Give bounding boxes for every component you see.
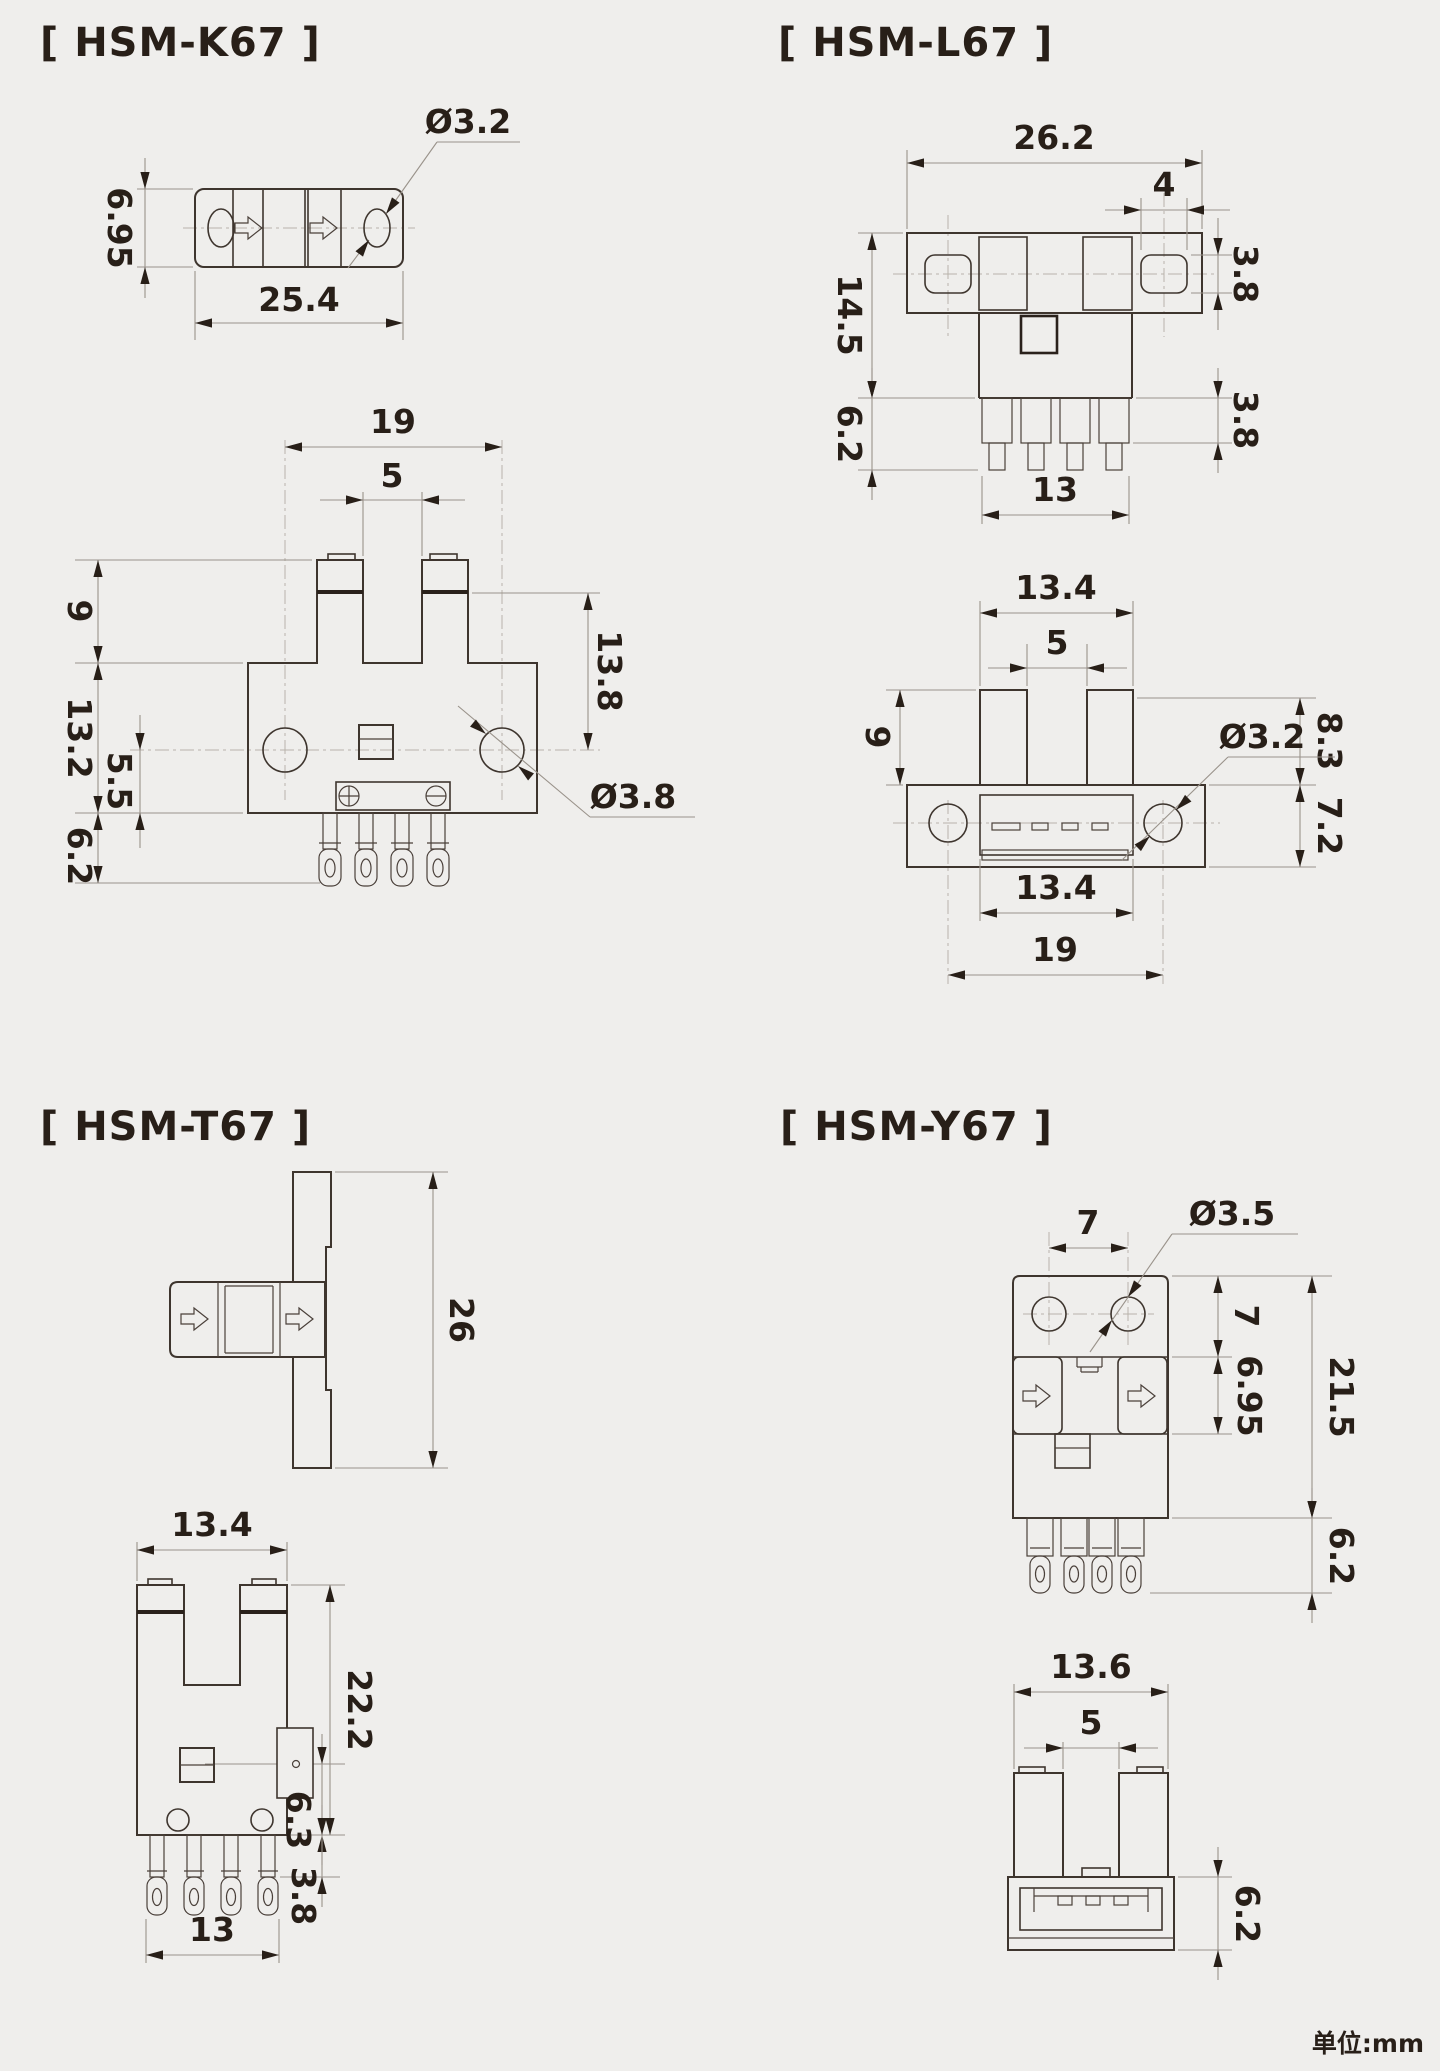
dim-label: 9 <box>858 726 897 749</box>
dim-label: 6.3 <box>279 1791 318 1849</box>
l67-bottom-dia-leader: Ø3.2 <box>1122 717 1335 860</box>
l67-bottom-dim-span: 19 <box>948 930 1163 980</box>
l67-pins <box>982 398 1129 470</box>
dim-label: 25.4 <box>258 280 339 319</box>
dim-label: 8.3 <box>1310 712 1349 770</box>
units-label: 单位:mm <box>1312 2029 1424 2058</box>
screw-slot-icon <box>426 786 446 806</box>
k67-top-dim-height: 6.95 <box>100 158 193 298</box>
y67-bottom-dim-slot: 5 <box>1024 1703 1158 1769</box>
l67-front-dim-pinstage: 3.8 <box>1133 368 1265 473</box>
dim-label: 6.95 <box>100 187 139 268</box>
y67-front-dia-leader: Ø3.5 <box>1090 1194 1298 1352</box>
drawing-canvas: [ HSM-K67 ] [ HSM-L67 ] [ HSM-T67 ] [ HS… <box>0 0 1440 2071</box>
t67-title: [ HSM-T67 ] <box>40 1104 311 1150</box>
k67-pins <box>319 813 449 886</box>
t67-side-dim-height: 26 <box>335 1172 481 1468</box>
l67-front-dim-pinsw: 13 <box>982 470 1129 524</box>
t67-pins <box>147 1835 278 1915</box>
datasheet-dimension-page: [ HSM-K67 ] [ HSM-L67 ] [ HSM-T67 ] [ HS… <box>0 0 1440 2071</box>
k67-title: [ HSM-K67 ] <box>40 20 321 66</box>
k67-front-dim-pinh: 6.2 <box>60 813 320 885</box>
dim-label: 5 <box>1046 623 1069 662</box>
l67-bottom-dim-baseh: 7.2 <box>1209 785 1349 867</box>
k67-front-dim-span: 19 <box>285 402 502 452</box>
dim-label: Ø3.2 <box>425 102 512 141</box>
dim-label: 6.95 <box>1230 1355 1269 1436</box>
dim-label: 6.2 <box>1322 1527 1361 1585</box>
dim-label: 6.2 <box>60 827 99 885</box>
dim-label: 5.5 <box>100 752 139 810</box>
y67-front-dim-pinh: 6.2 <box>1150 1488 1361 1623</box>
k67-front-dia-leader: Ø3.8 <box>458 706 695 817</box>
dim-label: 19 <box>370 402 416 441</box>
dim-label: 5 <box>381 456 404 495</box>
l67-front-dim-pinh: 6.2 <box>830 368 978 500</box>
l67-front-dim-height: 14.5 <box>830 233 975 398</box>
y67-title: [ HSM-Y67 ] <box>780 1104 1053 1150</box>
k67-front-dim-depth: 13.8 <box>472 593 629 750</box>
dim-label: 26 <box>442 1297 481 1343</box>
dim-label: 14.5 <box>830 274 869 355</box>
y67-bottom-view <box>1008 1767 1174 1950</box>
k67-top-view <box>183 189 415 267</box>
k67-front-dim-base: 13.2 <box>60 663 243 813</box>
dim-label: 5 <box>1080 1703 1103 1742</box>
l67-front-view <box>893 193 1216 470</box>
dim-label: 13.2 <box>60 697 99 778</box>
k67-front-dim-holeoff: 5.5 <box>100 715 145 848</box>
dim-label: 26.2 <box>1013 118 1094 157</box>
emitter-arrow-icon <box>1023 1385 1050 1407</box>
dim-label: Ø3.5 <box>1189 1194 1276 1233</box>
y67-bottom-dim-baseh: 6.2 <box>1178 1847 1267 1980</box>
dim-label: 13.4 <box>1015 868 1096 907</box>
k67-front-dim-slot: 5 <box>320 456 465 556</box>
dim-label: 3.8 <box>1226 245 1265 303</box>
receiver-arrow-icon <box>1128 1385 1155 1407</box>
dim-label: 7 <box>1227 1305 1266 1328</box>
dim-label: 21.5 <box>1322 1356 1361 1437</box>
dim-label: 13 <box>1032 470 1078 509</box>
dim-label: 19 <box>1032 930 1078 969</box>
k67-front-dim-prong: 9 <box>60 560 312 663</box>
dim-label: 6.2 <box>830 405 869 463</box>
dim-label: 13.4 <box>171 1505 252 1544</box>
k67-top-dia-leader: Ø3.2 <box>348 102 520 268</box>
dim-label: 3.8 <box>284 1867 323 1925</box>
dim-label: 7 <box>1077 1203 1100 1242</box>
dim-label: Ø3.8 <box>590 777 677 816</box>
dim-label: 22.2 <box>340 1669 379 1750</box>
l67-bottom-dim-innerw: 13.4 <box>980 859 1133 921</box>
dim-label: 3.8 <box>1226 391 1265 449</box>
t67-front-dim-width: 13.4 <box>137 1505 287 1581</box>
l67-title: [ HSM-L67 ] <box>778 20 1053 66</box>
y67-front-dim-toph: 7 <box>1172 1276 1332 1357</box>
y67-pins <box>1027 1518 1144 1593</box>
k67-top-dim-width: 25.4 <box>195 271 403 340</box>
t67-front-view <box>137 1579 345 1915</box>
dim-label: Ø3.2 <box>1219 717 1306 756</box>
dim-label: 4 <box>1153 165 1176 204</box>
y67-front-view <box>1013 1232 1168 1593</box>
screw-cross-icon <box>339 786 359 806</box>
dim-label: 13 <box>189 1910 235 1949</box>
y67-front-dim-span: 7 <box>1049 1203 1128 1253</box>
dim-label: 6.2 <box>1228 1885 1267 1943</box>
t67-side-view <box>170 1172 331 1468</box>
dim-label: 9 <box>60 600 99 623</box>
y67-front-dim-midh: 6.95 <box>1172 1355 1269 1436</box>
l67-bottom-dim-slot: 5 <box>988 623 1127 686</box>
t67-front-dim-pinsw: 13 <box>146 1910 279 1963</box>
dim-label: 13.4 <box>1015 568 1096 607</box>
dim-label: 7.2 <box>1310 797 1349 855</box>
l67-bottom-dim-pronglen: 9 <box>858 690 976 785</box>
dim-label: 13.8 <box>590 630 629 711</box>
dim-label: 13.6 <box>1050 1647 1131 1686</box>
